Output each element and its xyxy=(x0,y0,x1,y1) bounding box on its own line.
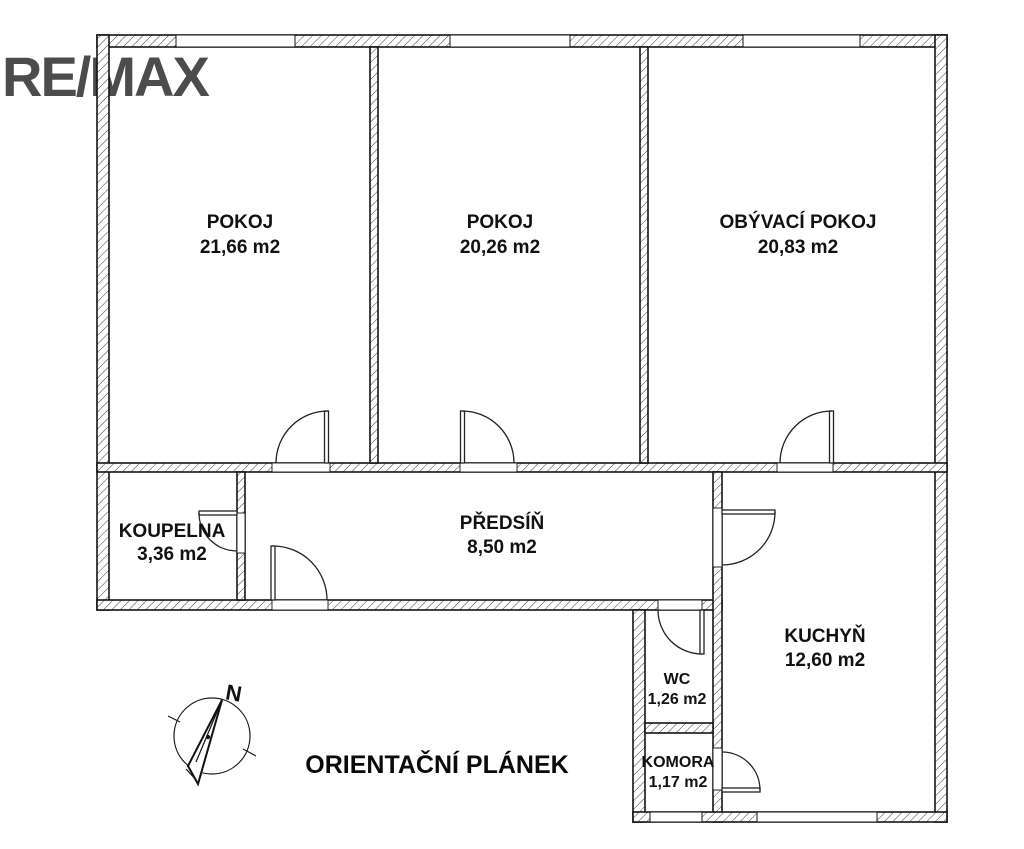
pokoj2-name: POKOJ xyxy=(467,212,534,233)
door-leaf-pokoj1 xyxy=(325,411,329,463)
pokoj1-area: 21,66 m2 xyxy=(200,237,280,258)
koupelna-area: 3,36 m2 xyxy=(137,544,207,565)
door-leaf-obyvaci xyxy=(830,411,834,463)
wall-wc-komora-divider xyxy=(645,723,713,733)
pokoj2-area: 20,26 m2 xyxy=(460,237,540,258)
door-leaf-entrance xyxy=(271,546,275,600)
koupelna-name: KOUPELNA xyxy=(119,521,226,542)
opening-obyvaci-door xyxy=(777,463,833,472)
obyvaci-pokoj-area: 20,83 m2 xyxy=(758,237,838,258)
wall-pokoj2-obyvaci-divider xyxy=(640,47,648,463)
opening-pokoj2-door xyxy=(460,463,517,472)
wall-wc-komora-left xyxy=(633,610,645,822)
window-pokoj1 xyxy=(176,35,295,47)
window-pokoj2 xyxy=(450,35,570,47)
kuchyn-name: KUCHYŇ xyxy=(784,625,865,647)
floor-plan-drawing: RE/MAX xyxy=(0,0,1024,849)
kuchyn-area: 12,60 m2 xyxy=(785,650,865,671)
wc-name: WC xyxy=(664,671,691,688)
opening-kuchyn-door xyxy=(713,508,722,567)
door-leaf-pokoj2 xyxy=(461,411,465,463)
plan-title: ORIENTAČNÍ PLÁNEK xyxy=(305,749,568,779)
wall-pokoj1-pokoj2-divider xyxy=(370,47,378,463)
opening-entrance-door xyxy=(272,600,328,610)
opening-koupelna-door xyxy=(237,513,245,553)
door-leaf-kuchyn xyxy=(722,510,775,514)
wall-left-exterior xyxy=(97,35,109,610)
window-komora xyxy=(650,812,702,822)
door-leaf-komora xyxy=(722,788,760,792)
wall-hall-bottom xyxy=(97,600,722,610)
predsin-area: 8,50 m2 xyxy=(467,537,537,558)
opening-pokoj1-door xyxy=(272,463,330,472)
pokoj1-name: POKOJ xyxy=(207,212,274,233)
window-obyvaci-pokoj xyxy=(743,35,860,47)
compass-center-dot xyxy=(206,735,210,739)
wc-area: 1,26 m2 xyxy=(648,691,707,708)
predsin-name: PŘEDSÍŇ xyxy=(460,512,544,534)
floor-plan-page: RE/MAX xyxy=(0,0,1024,849)
komora-name: KOMORA xyxy=(642,754,715,771)
door-leaf-wc xyxy=(700,610,704,654)
window-kuchyn xyxy=(757,812,877,822)
opening-wc-door xyxy=(658,600,702,610)
wall-right-exterior xyxy=(935,35,947,822)
obyvaci-pokoj-name: OBÝVACÍ POKOJ xyxy=(720,211,877,233)
page-background xyxy=(0,0,1024,849)
door-leaf-koupelna xyxy=(199,511,237,515)
komora-area: 1,17 m2 xyxy=(649,774,708,791)
